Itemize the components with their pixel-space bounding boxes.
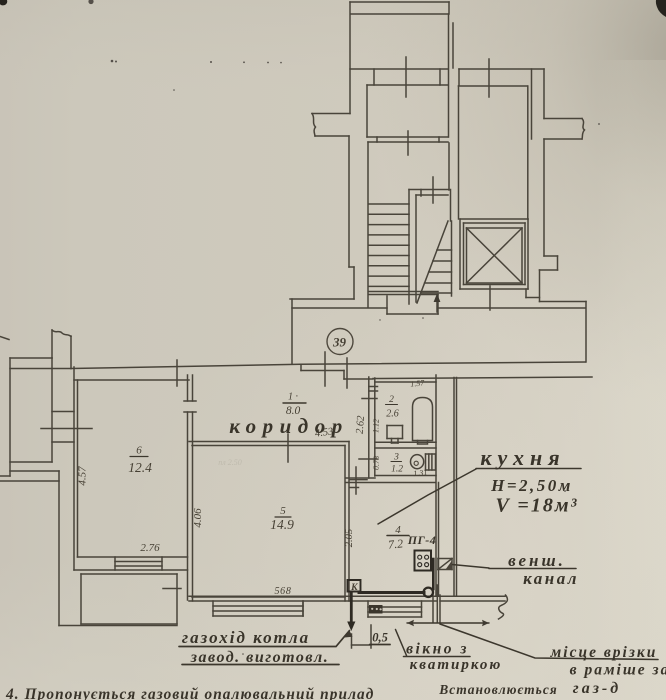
svg-text:4: 4 [395, 524, 401, 536]
svg-text:14.9: 14.9 [270, 517, 294, 532]
svg-text:газохід котла: газохід котла [182, 628, 310, 647]
svg-text:1.31: 1.31 [413, 468, 428, 478]
svg-text:1.2: 1.2 [391, 465, 403, 475]
svg-text:4.06: 4.06 [192, 508, 204, 528]
svg-text:завод. виготовл.: завод. виготовл. [190, 649, 329, 666]
svg-text:7.2: 7.2 [387, 536, 403, 551]
svg-text:Н=2,50м: Н=2,50м [490, 476, 573, 495]
svg-text:К: К [350, 583, 358, 593]
svg-text:2: 2 [389, 395, 394, 405]
svg-text:12.4: 12.4 [128, 460, 152, 475]
svg-text:Встановлюється: Встановлюється [438, 682, 558, 697]
svg-text:в раміше за: в раміше за [570, 662, 666, 679]
svg-text:1 ·: 1 · [288, 392, 298, 403]
svg-text:газ-д: газ-д [573, 680, 621, 697]
svg-text:0,5: 0,5 [372, 631, 388, 645]
svg-text:канал: канал [523, 569, 579, 588]
svg-text:39: 39 [332, 335, 347, 350]
svg-text:V =18м³: V =18м³ [495, 495, 578, 517]
svg-text:2.76: 2.76 [140, 542, 160, 554]
svg-text:місце врізки: місце врізки [550, 644, 658, 661]
svg-text:1.57: 1.57 [410, 378, 426, 389]
svg-text:кухня: кухня [480, 445, 565, 470]
svg-text:0.78: 0.78 [372, 456, 381, 470]
svg-text:2.05: 2.05 [344, 529, 355, 547]
svg-text:2.62: 2.62 [355, 415, 367, 435]
svg-text:кватиркою: кватиркою [410, 657, 503, 673]
svg-text:венш.: венш. [508, 551, 566, 570]
svg-text:4.57: 4.57 [77, 466, 89, 486]
svg-text:4. Пропонується газовий опалюв: 4. Пропонується газовий опалювальний при… [5, 686, 374, 700]
svg-text:1.12: 1.12 [371, 419, 380, 433]
svg-text:ПГ-4: ПГ-4 [407, 533, 437, 547]
svg-text:568: 568 [274, 586, 291, 597]
svg-text:6: 6 [136, 445, 142, 457]
svg-text:коридор: коридор [229, 414, 348, 438]
svg-text:5: 5 [280, 505, 286, 517]
svg-text:2.6: 2.6 [386, 409, 399, 420]
svg-text:3: 3 [393, 453, 399, 463]
svg-text:пл 2.50: пл 2.50 [218, 458, 242, 467]
svg-text:вікно з: вікно з [406, 641, 469, 658]
